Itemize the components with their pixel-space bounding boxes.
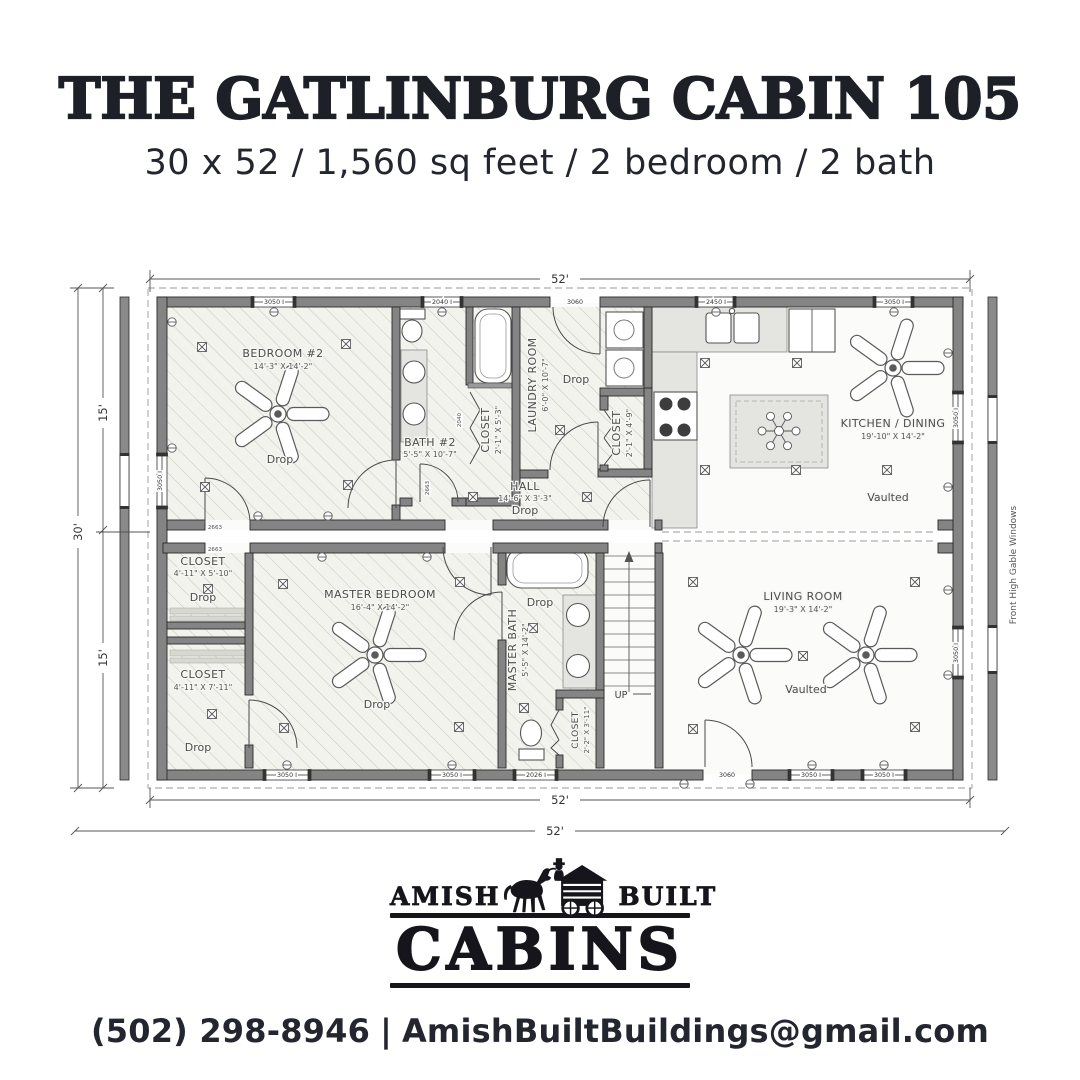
svg-text:2'-2" X 3'-11": 2'-2" X 3'-11" — [583, 707, 591, 754]
label-laundry: LAUNDRY ROOM — [526, 337, 539, 432]
module-seam — [662, 532, 936, 541]
dim-left-top: 15' — [96, 404, 110, 422]
svg-text:6'-0" X 10'-7": 6'-0" X 10'-7" — [541, 358, 550, 412]
svg-text:4'-11" X 5'-10": 4'-11" X 5'-10" — [174, 569, 233, 578]
label-master: MASTER BEDROOM — [324, 588, 436, 601]
closet1-shelf — [170, 608, 245, 614]
label-living: LIVING ROOM — [763, 590, 842, 603]
svg-text:14'-6" X 3'-3": 14'-6" X 3'-3" — [498, 494, 552, 503]
email-address: AmishBuiltBuildings@gmail.com — [402, 1012, 989, 1050]
svg-text:2'-1" X 5'-3": 2'-1" X 5'-3" — [494, 406, 503, 454]
right-gable-strip — [988, 297, 997, 780]
svg-text:Drop: Drop — [185, 741, 211, 754]
label-closet1: CLOSET — [180, 555, 225, 568]
svg-text:2663: 2663 — [208, 547, 223, 553]
dim-bottom-inner: 52' — [551, 793, 569, 807]
svg-text:3050 I: 3050 I — [264, 299, 284, 306]
phone-number: (502) 298-8946 — [91, 1012, 370, 1050]
svg-text:14'-3" X 14'-2": 14'-3" X 14'-2" — [254, 362, 313, 371]
svg-text:2040 I: 2040 I — [432, 299, 452, 306]
brand-logo: AMISH — [390, 852, 690, 988]
svg-text:Drop: Drop — [267, 453, 293, 466]
svg-text:19'-3" X 14'-2": 19'-3" X 14'-2" — [774, 605, 833, 614]
label-bedroom2: BEDROOM #2 — [242, 347, 323, 360]
svg-text:3060: 3060 — [719, 772, 735, 779]
left-gable-strip — [120, 297, 129, 780]
dim-left-bottom: 15' — [96, 649, 110, 667]
dim-left-overall: 30' — [71, 523, 85, 541]
svg-text:3050 I: 3050 I — [442, 772, 462, 779]
svg-text:Vaulted: Vaulted — [867, 491, 909, 504]
svg-text:4'-11" X 7'-11": 4'-11" X 7'-11" — [174, 683, 233, 692]
label-closet2: CLOSET — [180, 668, 225, 681]
label-kitchen: KITCHEN / DINING — [841, 417, 946, 430]
svg-text:2'-1" X 4'-9": 2'-1" X 4'-9" — [625, 409, 634, 457]
svg-text:3050 I: 3050 I — [874, 772, 894, 779]
logo-amish: AMISH — [390, 882, 500, 913]
svg-text:3050 I: 3050 I — [953, 408, 960, 428]
svg-text:Drop: Drop — [563, 373, 589, 386]
label-hall: HALL — [510, 480, 540, 493]
closet2-shelf — [170, 650, 245, 656]
svg-text:3050 I: 3050 I — [801, 772, 821, 779]
logo-rule-bottom — [390, 983, 690, 988]
flyer-page: THE GATLINBURG CABIN 105 30 x 52 / 1,560… — [0, 0, 1080, 1080]
svg-text:3050 I: 3050 I — [953, 643, 960, 663]
svg-text:3060: 3060 — [567, 299, 583, 306]
toilet-bath2 — [402, 320, 422, 342]
label-closet-bath2: CLOSET — [479, 407, 492, 452]
svg-text:Drop: Drop — [527, 596, 553, 609]
svg-text:2040: 2040 — [457, 412, 463, 427]
svg-text:Drop: Drop — [512, 504, 538, 517]
svg-text:Drop: Drop — [190, 591, 216, 604]
label-masterbath: MASTER BATH — [506, 609, 519, 691]
svg-text:5'-5" X 10'-7": 5'-5" X 10'-7" — [403, 450, 457, 459]
toilet-master — [521, 720, 542, 746]
logo-built: BUILT — [618, 882, 717, 913]
contact-line: (502) 298-8946|AmishBuiltBuildings@gmail… — [0, 1012, 1080, 1050]
stairs-up-label: UP — [615, 690, 628, 701]
label-bath2: BATH #2 — [404, 436, 456, 449]
toilet-tank — [399, 309, 425, 319]
svg-text:3050 I: 3050 I — [277, 772, 297, 779]
horse-and-buggy-icon — [496, 852, 622, 920]
washer — [606, 312, 643, 348]
svg-text:2026 I: 2026 I — [526, 772, 546, 779]
svg-text:2663: 2663 — [208, 525, 223, 531]
svg-text:2663: 2663 — [425, 480, 431, 495]
svg-text:5'-5" X 14'-2": 5'-5" X 14'-2" — [521, 623, 530, 677]
contact-separator: | — [380, 1012, 392, 1050]
faucet — [729, 308, 734, 313]
dim-top: 52' — [551, 272, 569, 286]
gable-windows-note: Front High Gable Windows — [1009, 505, 1019, 624]
svg-text:Drop: Drop — [364, 698, 390, 711]
dim-bottom-outer: 52' — [546, 824, 564, 838]
svg-text:Vaulted: Vaulted — [785, 683, 827, 696]
svg-text:19'-10" X 14'-2": 19'-10" X 14'-2" — [861, 432, 925, 441]
kitchen-sink — [706, 313, 731, 343]
svg-text:2450 I: 2450 I — [706, 299, 726, 306]
svg-text:16'-4" X 14'-2": 16'-4" X 14'-2" — [351, 603, 410, 612]
svg-text:3050 I: 3050 I — [884, 299, 904, 306]
label-closet-stair: CLOSET — [571, 711, 581, 748]
dryer — [606, 350, 643, 386]
svg-text:3050 I: 3050 I — [157, 471, 164, 491]
logo-cabins: CABINS — [390, 919, 690, 981]
label-closet-pantry: CLOSET — [610, 410, 623, 455]
